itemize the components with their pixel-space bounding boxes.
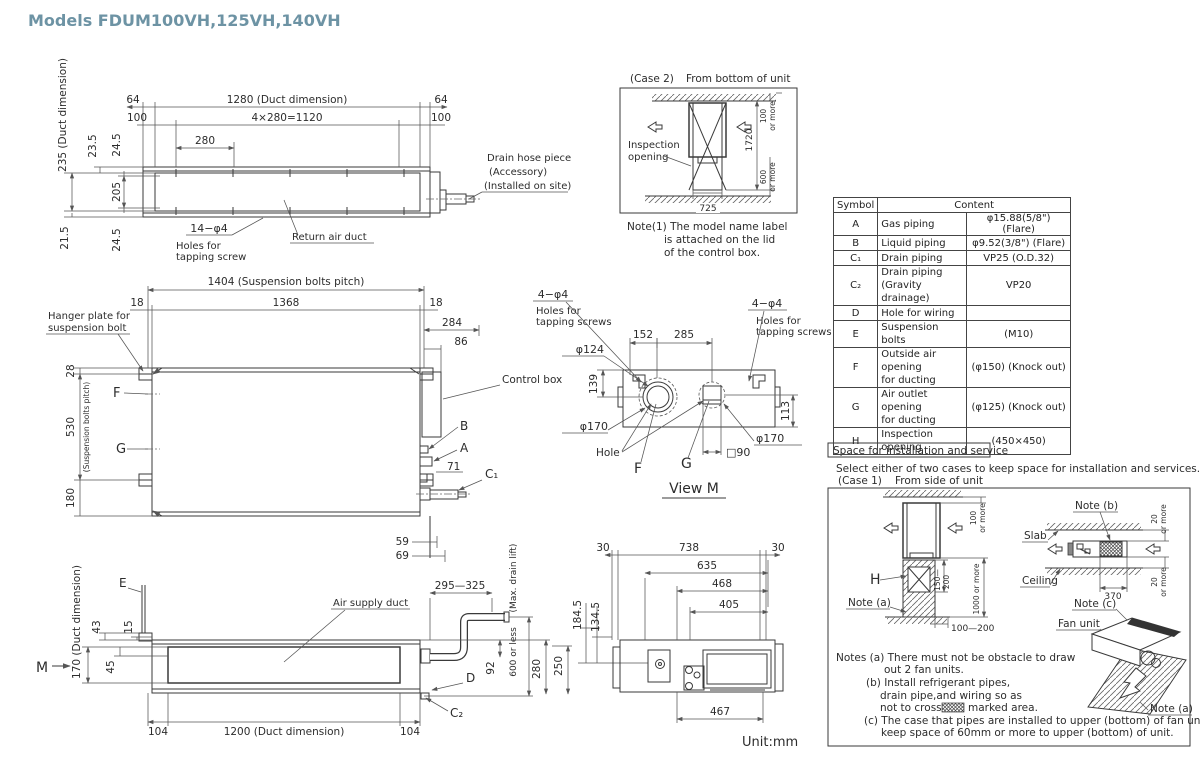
dim-100-case1-txt: or more	[978, 503, 987, 533]
corner-tab-right	[753, 375, 765, 388]
notes-line1: Notes (a) There must not be obstacle to …	[836, 652, 1076, 664]
dim-phi170-left: φ170	[580, 420, 608, 433]
dim-235-duct: 235 (Duct dimension)	[57, 58, 69, 172]
name-cell: Hole for wiring	[878, 306, 967, 321]
dim-1000: 1000 or more	[972, 563, 981, 614]
note-b-label: Note (b)	[1075, 500, 1118, 512]
dim-64-left: 64	[126, 94, 140, 106]
label-drain-hose-1: Drain hose piece	[487, 153, 571, 164]
dim-1368: 1368	[273, 297, 300, 309]
fan-unit-isometric	[1088, 618, 1186, 714]
front-view-unit-body	[152, 368, 420, 516]
side-view: E 170 (Duct dimension) 43 15 45 M Air su…	[36, 544, 648, 738]
pipe-C1	[430, 490, 458, 499]
label-G-viewm: G	[681, 456, 692, 472]
case2-view: (Case 2) From bottom of unit 1720 100 or…	[620, 73, 797, 259]
table-row: HInspection opening(450×450)	[834, 428, 1071, 455]
table-header-row: Symbol Content	[834, 198, 1071, 213]
note1-line2: is attached on the lid	[664, 234, 775, 246]
space-intro: Select either of two cases to keep space…	[836, 463, 1200, 475]
dim-86: 86	[454, 336, 468, 348]
case1-unit	[903, 503, 940, 558]
unit-mm-label: Unit:mm	[742, 735, 798, 750]
label-600-or-less: 600 or less	[509, 627, 519, 677]
slab-arrow-left	[1048, 544, 1062, 554]
value-cell: (φ125) (Knock out)	[967, 388, 1071, 428]
dim-100-200: 100—200	[951, 624, 995, 634]
dim-15: 15	[123, 620, 135, 633]
case1-arrow-left	[884, 523, 898, 533]
view-m: 152 285 φ124 4−φ4 Holes for tapping scre…	[533, 288, 832, 498]
dim-468: 468	[712, 578, 732, 590]
dim-18-left: 18	[130, 297, 143, 309]
label-holes-left-2: tapping screws	[536, 317, 612, 328]
dim-30-right: 30	[771, 542, 784, 554]
table-row: C₂Drain piping(Gravity drainage)VP20	[834, 266, 1071, 306]
notes-line6: (c) The case that pipes are installed to…	[864, 715, 1200, 727]
dim-134-5: 134.5	[590, 602, 602, 632]
label-4phi4-left: 4−φ4	[538, 288, 568, 301]
note1-line1: Note(1) The model name label	[627, 221, 787, 233]
label-return-air-duct: Return air duct	[292, 232, 367, 243]
tapping-screw-holes	[176, 169, 404, 215]
case2-title: From bottom of unit	[686, 73, 790, 85]
notes-line2: out 2 fan units.	[884, 664, 964, 676]
page-title: Models FDUM100VH,125VH,140VH	[28, 11, 341, 30]
front-view: 1404 (Suspension bolts pitch) 18 1368 18…	[46, 276, 562, 562]
symbol-cell: C₂	[834, 266, 878, 306]
label-4phi4-right: 4−φ4	[752, 297, 782, 310]
dim-1200: 1200 (Duct dimension)	[224, 726, 345, 738]
space-section: Space for installation and service Selec…	[828, 443, 1200, 746]
dim-64-right: 64	[434, 94, 448, 106]
dim-28: 28	[65, 364, 77, 377]
label-drain-hose-3: (Installed on site)	[484, 181, 571, 192]
label-hanger-2: suspension bolt	[48, 323, 126, 334]
note-c-label: Note (c)	[1074, 598, 1116, 610]
dim-184-5: 184.5	[572, 600, 584, 630]
case1-label: (Case 1)	[838, 475, 882, 487]
dim-1120: 4×280=1120	[251, 112, 322, 124]
dim-530-note: (Suspension bolts pitch)	[82, 382, 91, 473]
dim-139: 139	[588, 374, 600, 394]
table-row: ESuspension bolts(M10)	[834, 321, 1071, 348]
dim-92: 92	[485, 661, 497, 674]
dim-250: 250	[553, 656, 565, 676]
dim-20-top: 20	[1150, 514, 1159, 524]
label-M: M	[36, 660, 48, 676]
value-cell: VP25 (O.D.32)	[967, 251, 1071, 266]
symbol-cell: F	[834, 348, 878, 388]
table-row: AGas pipingφ15.88(5/8") (Flare)	[834, 213, 1071, 236]
label-14-phi4: 14−φ4	[190, 222, 227, 235]
symbol-cell: C₁	[834, 251, 878, 266]
label-H: H	[870, 572, 881, 588]
label-fan-unit: Fan unit	[1058, 618, 1100, 630]
label-hole: Hole	[596, 447, 620, 459]
dim-100-left: 100	[127, 112, 147, 124]
symbol-content-table: Symbol Content AGas pipingφ15.88(5/8") (…	[833, 197, 1071, 455]
notes-line3: (b) Install refrigerant pipes,	[866, 677, 1010, 689]
case2-unit	[689, 103, 726, 157]
opening-G-square	[703, 386, 721, 404]
pipe-B	[420, 446, 428, 453]
symbol-cell: A	[834, 213, 878, 236]
dim-104-left: 104	[148, 726, 168, 738]
dim-284: 284	[442, 317, 462, 329]
label-C2: C₂	[450, 706, 463, 720]
dim-170-duct: 170 (Duct dimension)	[71, 565, 83, 679]
label-inspection-2: opening	[628, 152, 668, 163]
dim-43: 43	[91, 620, 103, 633]
dim-405: 405	[719, 599, 739, 611]
label-max-drain-lift: (Max. drain lift)	[509, 544, 519, 613]
dim-738: 738	[679, 542, 699, 554]
slab-arrow-right	[1146, 544, 1160, 554]
dim-100-case1: 100	[969, 511, 978, 526]
label-inspection-1: Inspection	[628, 140, 680, 151]
pipe-A	[420, 457, 432, 466]
dim-180: 180	[65, 488, 77, 508]
dim-phi124: φ124	[576, 343, 604, 356]
label-D: D	[466, 671, 475, 685]
return-air-duct-opening	[155, 173, 420, 211]
hanger-plates	[139, 368, 433, 486]
label-drain-hose-2: (Accessory)	[489, 167, 547, 178]
value-cell: φ15.88(5/8") (Flare)	[967, 213, 1071, 236]
label-E: E	[119, 576, 127, 590]
dim-59: 59	[396, 536, 409, 548]
value-cell: (M10)	[967, 321, 1071, 348]
label-F: F	[113, 386, 120, 401]
dim-69: 69	[396, 550, 409, 562]
dim-21-5: 21.5	[59, 226, 71, 249]
dim-152: 152	[633, 329, 653, 341]
dim-sq90: □90	[726, 446, 750, 459]
dim-20-top-txt: or more	[1159, 504, 1168, 534]
dim-600-more: 600	[759, 170, 768, 185]
view-m-title: View M	[669, 481, 719, 497]
dim-285: 285	[674, 329, 694, 341]
notes-line7: keep space of 60mm or more to upper (bot…	[881, 727, 1174, 739]
dim-1280: 1280 (Duct dimension)	[227, 94, 348, 106]
notes-line5a: not to cross	[880, 702, 942, 714]
name-cell: Suspension bolts	[878, 321, 967, 348]
case1-title: From side of unit	[895, 475, 983, 487]
notes-line4: drain pipe,and wiring so as	[880, 690, 1022, 702]
end-view: 30 738 30 635 468 405 467 Unit:mm	[596, 542, 798, 750]
pull-out-arrow-left	[648, 122, 662, 132]
table-row: GAir outlet openingfor ducting(φ125) (Kn…	[834, 388, 1071, 428]
label-holes-right-2: tapping screws	[756, 327, 832, 338]
label-slab: Slab	[1024, 530, 1047, 542]
dim-725: 725	[699, 204, 716, 214]
symbol-cell: E	[834, 321, 878, 348]
dim-600-more-txt: or more	[768, 162, 777, 192]
symbol-cell: G	[834, 388, 878, 428]
value-cell: (450×450)	[967, 428, 1071, 455]
dim-280: 280	[195, 135, 215, 147]
dim-45: 45	[105, 660, 117, 673]
dim-200: 200	[942, 575, 951, 590]
hatch-swatch	[942, 703, 964, 712]
side-view-unit-body	[152, 640, 420, 693]
table-row: BLiquid pipingφ9.52(3/8") (Flare)	[834, 236, 1071, 251]
dim-30-left: 30	[596, 542, 609, 554]
dim-23-5: 23.5	[87, 134, 99, 157]
value-cell: VP20	[967, 266, 1071, 306]
air-supply-duct-opening	[168, 647, 400, 683]
symbol-cell: H	[834, 428, 878, 455]
label-B: B	[460, 419, 468, 433]
name-cell: Drain piping(Gravity drainage)	[878, 266, 967, 306]
case2-inspection-opening	[693, 157, 722, 190]
symbol-cell: D	[834, 306, 878, 321]
dim-205: 205	[111, 182, 123, 202]
drawing-sheet: Models FDUM100VH,125VH,140VH 64 1280 (Du…	[0, 0, 1200, 761]
note1-line3: of the control box.	[664, 247, 760, 259]
symbol-cell: B	[834, 236, 878, 251]
table-row: C₁Drain pipingVP25 (O.D.32)	[834, 251, 1071, 266]
dim-18-right: 18	[429, 297, 442, 309]
dim-20-bottom-txt: or more	[1159, 567, 1168, 597]
dim-530: 530	[65, 417, 77, 437]
header-symbol: Symbol	[834, 198, 878, 213]
note-a-right: Note (a)	[1150, 703, 1193, 715]
dim-71: 71	[447, 461, 460, 473]
name-cell: Drain piping	[878, 251, 967, 266]
dim-150: 150—	[933, 569, 942, 591]
notes-line5b: marked area.	[968, 702, 1038, 714]
view-m-panel	[623, 370, 775, 427]
dim-1720: 1720	[745, 128, 755, 151]
label-F-viewm: F	[634, 461, 642, 477]
control-box	[422, 372, 441, 437]
value-cell: φ9.52(3/8") (Flare)	[967, 236, 1071, 251]
name-cell: Inspection opening	[878, 428, 967, 455]
note-a-left: Note (a)	[848, 597, 891, 609]
dim-113: 113	[780, 401, 792, 421]
label-air-supply-duct: Air supply duct	[333, 598, 408, 609]
name-cell: Gas piping	[878, 213, 967, 236]
dim-20-bottom: 20	[1150, 577, 1159, 587]
name-cell: Air outlet openingfor ducting	[878, 388, 967, 428]
table-row: DHole for wiring	[834, 306, 1071, 321]
label-holes-for: Holes for	[176, 241, 222, 252]
top-view: 64 1280 (Duct dimension) 64 100 4×280=11…	[57, 58, 571, 263]
label-control-box: Control box	[502, 374, 562, 386]
header-content: Content	[878, 198, 1071, 213]
top-view-unit-body	[143, 167, 430, 217]
dim-100-more: 100	[759, 109, 768, 124]
no-cross-area	[1100, 542, 1122, 556]
case2-label: (Case 2)	[630, 73, 674, 85]
drain-lift-pipe	[430, 617, 505, 657]
name-cell: Outside air openingfor ducting	[878, 348, 967, 388]
dim-100-right: 100	[431, 112, 451, 124]
dim-635: 635	[697, 560, 717, 572]
dim-100-more-txt: or more	[768, 101, 777, 131]
dim-467: 467	[710, 706, 730, 718]
label-C1: C₁	[485, 467, 498, 481]
dim-280: 280	[531, 659, 543, 679]
suspension-bolt-E	[142, 585, 145, 633]
dim-295-325: 295—325	[435, 580, 486, 592]
dim-1404: 1404 (Suspension bolts pitch)	[208, 276, 365, 288]
case1-arrow-right	[948, 523, 962, 533]
label-G: G	[116, 442, 126, 457]
name-cell: Liquid piping	[878, 236, 967, 251]
label-tapping-screw: tapping screw	[176, 252, 246, 263]
table-row: FOutside air openingfor ducting(φ150) (K…	[834, 348, 1071, 388]
dim-24-5-top: 24.5	[111, 133, 123, 156]
dim-24-5-bottom: 24.5	[111, 228, 123, 251]
label-hanger-1: Hanger plate for	[48, 311, 131, 322]
label-A: A	[460, 441, 469, 455]
value-cell: (φ150) (Knock out)	[967, 348, 1071, 388]
value-cell	[967, 306, 1071, 321]
end-view-box	[703, 650, 771, 688]
dim-104-right: 104	[400, 726, 420, 738]
dim-phi170-right: φ170	[756, 432, 784, 445]
